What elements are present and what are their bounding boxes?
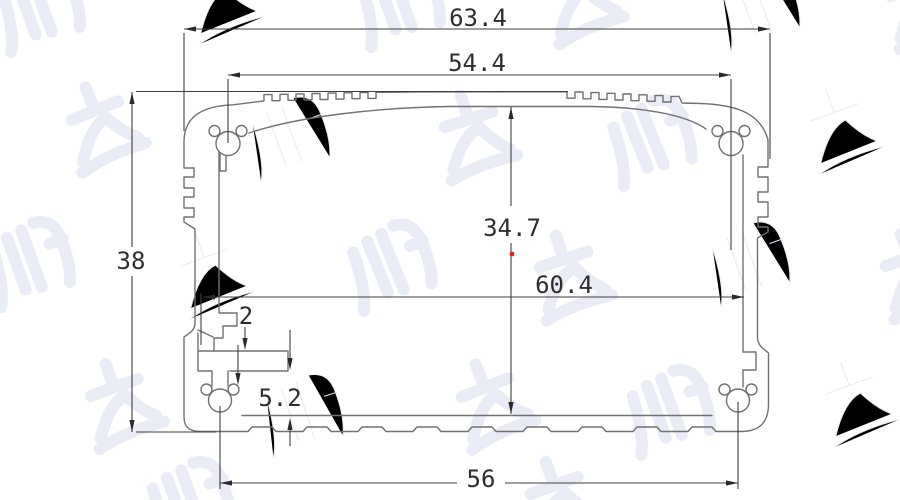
left-wall-inner-and-rail <box>214 152 237 350</box>
top-left-boss-prong <box>220 154 226 171</box>
dim-label-inner-width: 60.4 <box>535 271 593 299</box>
dimension-inner-width: 60.4 <box>201 271 744 345</box>
dim-label-overall-width: 63.4 <box>449 4 507 32</box>
dim-label-top-boss-spacing: 54.4 <box>448 49 506 77</box>
enclosure-cross-section-drawing: 63.4 54.4 38 34.7 <box>0 0 900 500</box>
dimension-rail-height: 5.2 <box>258 330 301 446</box>
dim-label-overall-height: 38 <box>117 247 146 275</box>
dimension-rail-slot-gap: 2 <box>235 302 253 385</box>
dim-label-rail-height: 5.2 <box>258 384 301 412</box>
dim-label-inner-height: 34.7 <box>483 214 541 242</box>
right-wall-inner-and-groove <box>743 155 756 387</box>
dim-label-bottom-boss-spacing: 56 <box>467 465 496 493</box>
dim-label-rail-slot-gap: 2 <box>239 302 253 330</box>
technical-drawing-canvas: 63.4 54.4 38 34.7 <box>0 0 900 500</box>
red-mark <box>510 252 515 257</box>
